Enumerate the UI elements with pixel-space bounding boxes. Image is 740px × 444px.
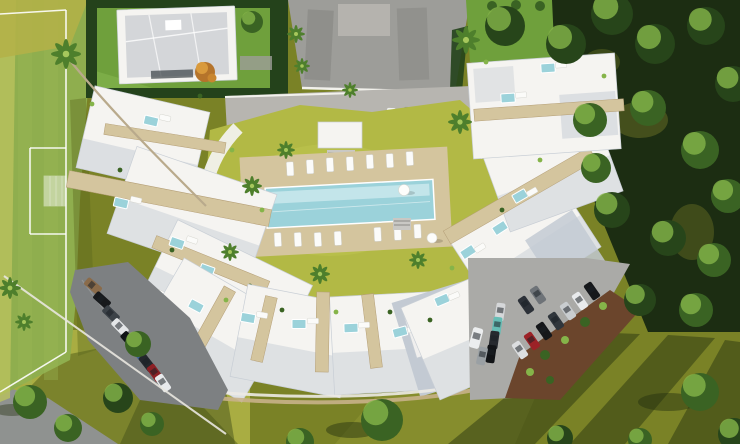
villa bbox=[117, 6, 238, 84]
porch-windows bbox=[151, 69, 193, 78]
goal bbox=[44, 176, 66, 206]
aerial-render-image bbox=[0, 0, 740, 444]
football-pitch bbox=[0, 0, 96, 402]
render-canvas bbox=[0, 0, 740, 444]
driveway bbox=[288, 0, 470, 92]
top-right-buildings bbox=[467, 53, 624, 159]
